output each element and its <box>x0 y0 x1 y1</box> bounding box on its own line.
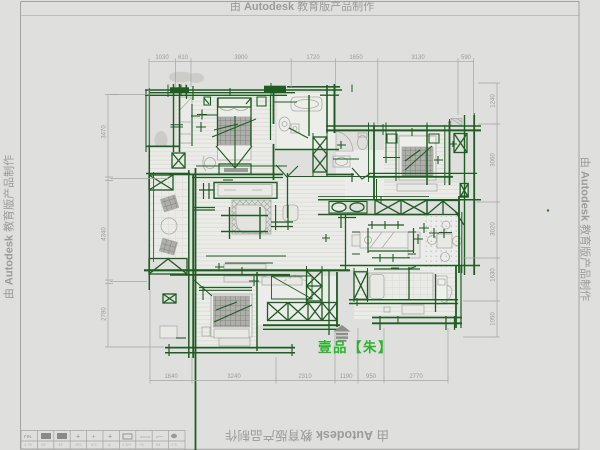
svg-text:由 Autodesk 教育版产品制作: 由 Autodesk 教育版产品制作 <box>2 155 16 299</box>
svg-text:+: + <box>108 434 112 441</box>
svg-text:1650: 1650 <box>349 55 363 61</box>
svg-text:1:75: 1:75 <box>24 442 33 447</box>
svg-text:.26'L: .26'L <box>74 442 83 447</box>
svg-text:4340: 4340 <box>102 227 108 241</box>
svg-text:1640: 1640 <box>164 374 178 380</box>
svg-text:FIN.: FIN. <box>24 434 33 439</box>
svg-text:1030: 1030 <box>155 55 169 61</box>
svg-text:由 Autodesk 教育版产品制作: 由 Autodesk 教育版产品制作 <box>225 428 389 443</box>
svg-text:26': 26' <box>41 442 46 447</box>
svg-text:54: 54 <box>156 442 161 447</box>
svg-text:壹品【朱】: 壹品【朱】 <box>318 339 393 355</box>
svg-text:2 5: 2 5 <box>171 442 177 447</box>
svg-text:1630: 1630 <box>491 268 497 282</box>
svg-text:1190: 1190 <box>340 374 354 380</box>
svg-text:+: + <box>92 435 96 441</box>
svg-text:4.5: 4.5 <box>91 442 97 447</box>
svg-text:1 3/4: 1 3/4 <box>122 442 132 447</box>
svg-text:610: 610 <box>178 55 189 61</box>
svg-text:4.: 4. <box>108 442 111 447</box>
svg-text:2770: 2770 <box>409 374 423 380</box>
svg-text:由 Autodesk 教育版产品制作: 由 Autodesk 教育版产品制作 <box>230 0 374 13</box>
svg-text:=—: =— <box>156 434 164 439</box>
svg-text:590: 590 <box>461 55 472 61</box>
svg-text:44': 44' <box>58 442 63 447</box>
svg-text:1720: 1720 <box>306 55 320 61</box>
svg-text:1240: 1240 <box>491 94 497 108</box>
svg-text:1050: 1050 <box>491 312 497 326</box>
svg-text:3060: 3060 <box>491 153 497 167</box>
svg-text:950: 950 <box>366 374 377 380</box>
svg-text:由 Autodesk 教育版产品制作: 由 Autodesk 教育版产品制作 <box>579 157 593 301</box>
svg-text:3240: 3240 <box>227 374 241 380</box>
svg-text:2310: 2310 <box>298 374 312 380</box>
svg-text:3130: 3130 <box>411 55 425 61</box>
svg-text:====: ==== <box>140 434 151 439</box>
svg-text:3470: 3470 <box>102 125 108 139</box>
svg-text:+: + <box>76 434 80 441</box>
svg-text:3020: 3020 <box>491 222 497 236</box>
svg-text:3900: 3900 <box>234 55 248 61</box>
svg-text:2780: 2780 <box>102 307 108 321</box>
svg-text:~5: ~5 <box>139 442 144 447</box>
